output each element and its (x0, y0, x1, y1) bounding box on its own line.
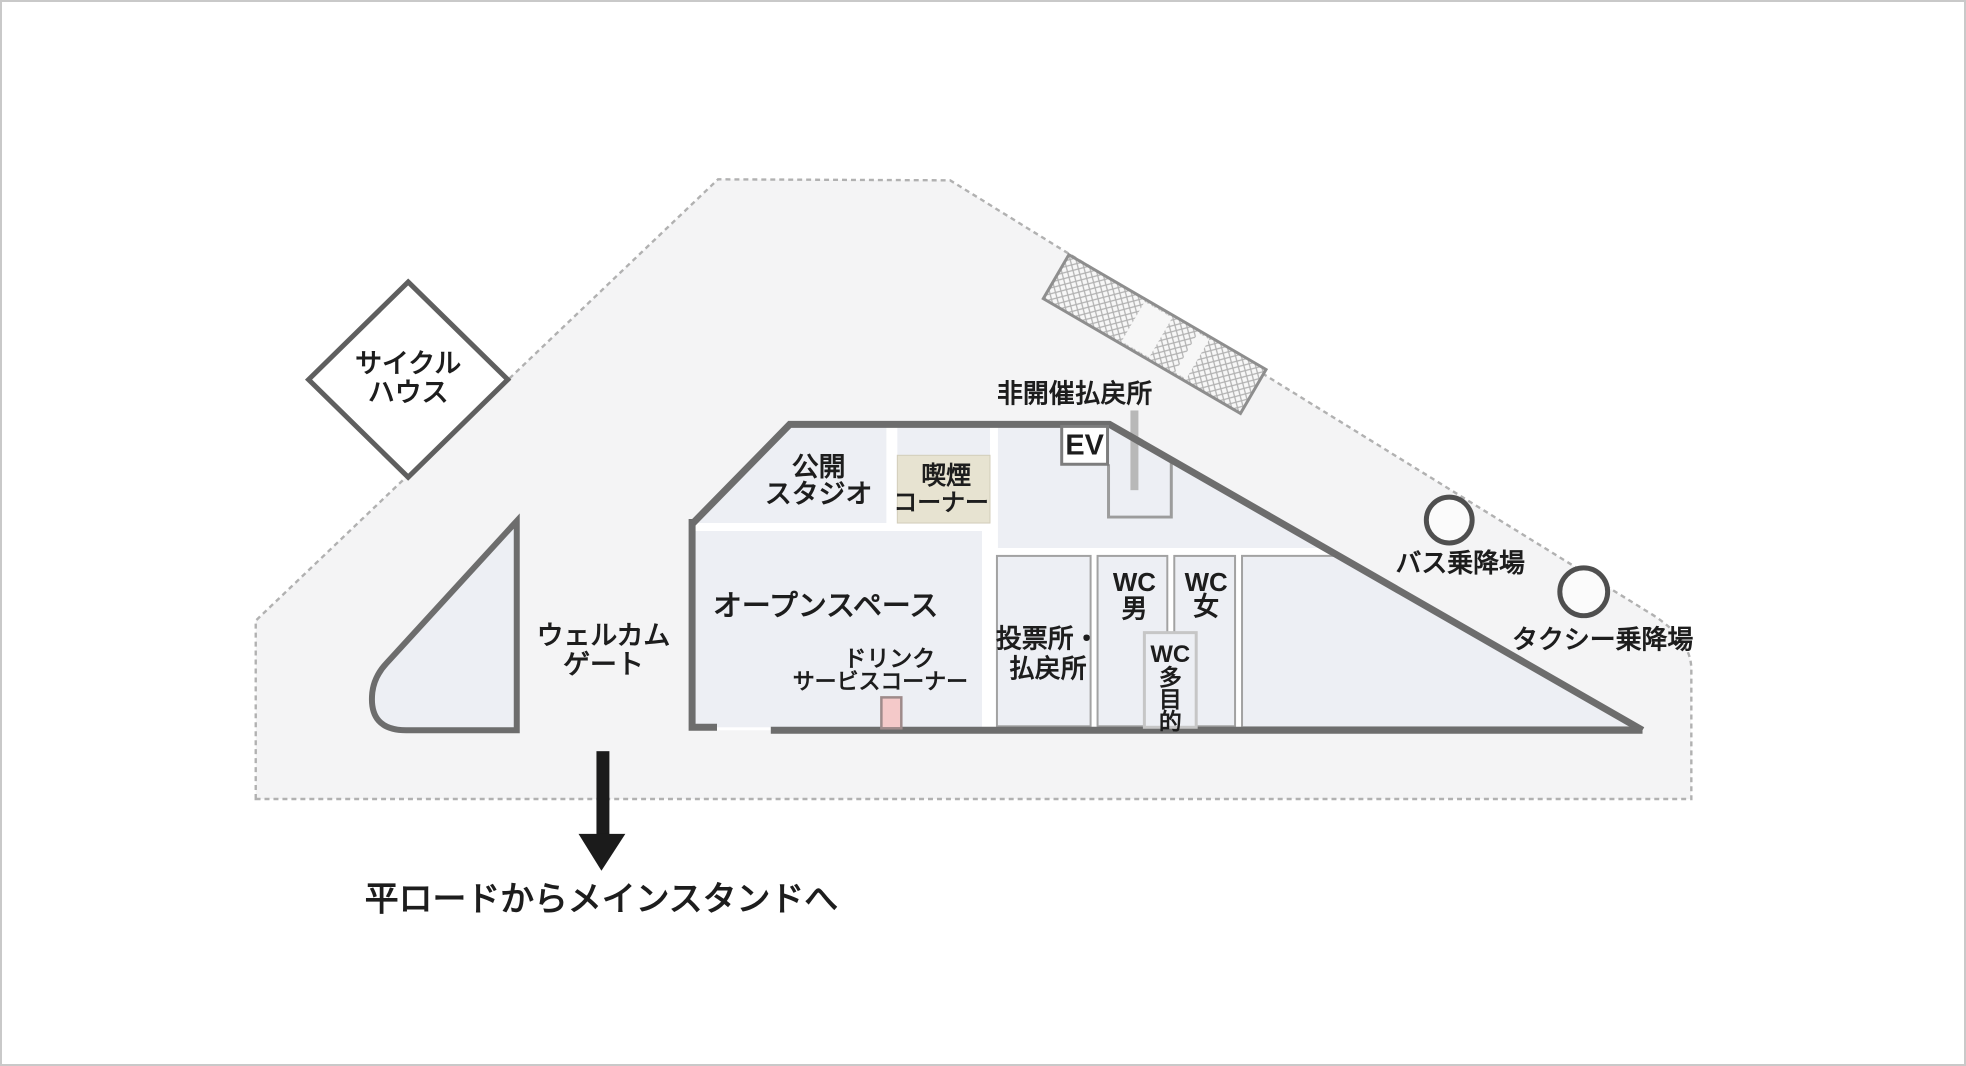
label-bus-stop: バス乗降場 (1395, 549, 1525, 578)
taxi-stop-marker-icon (1560, 568, 1608, 616)
label-wc-men-line2: 男 (1121, 596, 1147, 624)
label-wc-women-line1: WC (1185, 569, 1228, 597)
offday-refund-leader-line (1130, 410, 1138, 490)
label-offday-refund: 非開催払戻所 (997, 380, 1152, 409)
drink-service-counter (881, 697, 901, 728)
label-wc-multi-line4: 的 (1159, 708, 1182, 734)
label-taxi-stop: タクシー乗降場 (1512, 626, 1693, 655)
label-smoking-line2: コーナー (893, 490, 989, 517)
label-welcome-gate-line2: ゲート (563, 650, 644, 680)
label-cycle-house-line1: サイクル (355, 349, 461, 379)
room-open-space (695, 531, 982, 727)
label-open-space: オープンスペース (713, 591, 938, 623)
label-elevator: EV (1065, 429, 1104, 461)
route-arrow-down-icon (579, 834, 626, 871)
label-public-studio-line1: 公開 (792, 452, 846, 482)
label-drink-service-line2: サービスコーナー (793, 669, 968, 694)
label-wc-men-line1: WC (1113, 569, 1156, 597)
label-public-studio-line2: スタジオ (765, 479, 873, 509)
label-route-note: 平ロードからメインスタンドへ (365, 881, 838, 919)
bus-stop-marker-icon (1426, 497, 1472, 543)
room-smoking-upper-strip (897, 424, 990, 455)
label-betting-refund-line2: 払戻所 (1009, 654, 1087, 683)
label-cycle-house-line2: ハウス (368, 378, 449, 408)
venue-map-canvas: サイクル ハウス 公開 スタジオ 喫煙 コーナー EV 非開催払戻所 オープンス… (0, 0, 1966, 1066)
label-welcome-gate-line1: ウェルカム (537, 621, 671, 651)
label-wc-women-line2: 女 (1193, 592, 1219, 622)
route-arrow-shaft (596, 751, 609, 836)
label-betting-refund-line1: 投票所・ (996, 625, 1100, 654)
floor-map-svg: サイクル ハウス 公開 スタジオ 喫煙 コーナー EV 非開催払戻所 オープンス… (2, 2, 1964, 1064)
label-drink-service-line1: ドリンク (844, 646, 936, 672)
label-smoking-line1: 喫煙 (921, 462, 971, 490)
